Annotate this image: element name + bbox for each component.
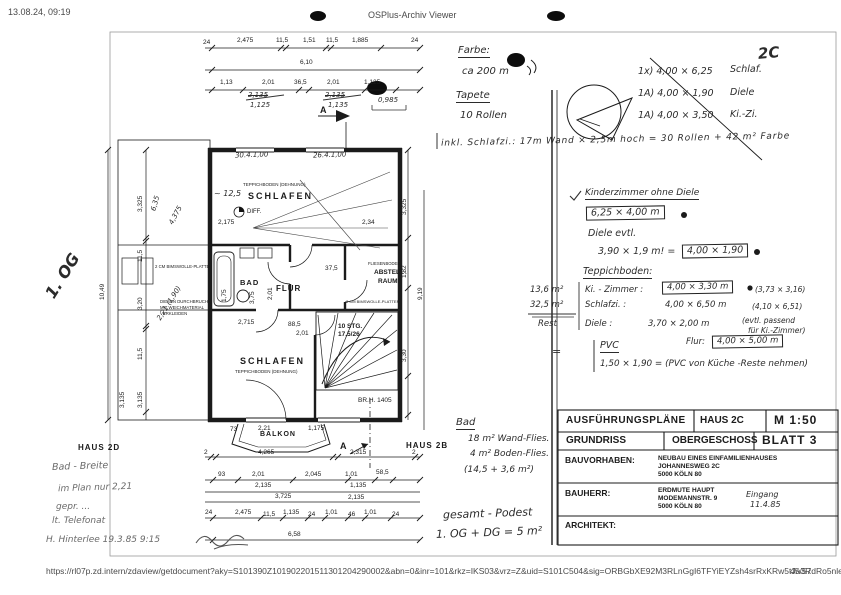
hand-note-small: (3,73 × 3,16) — [755, 286, 805, 294]
dim-label: 2,34 — [362, 220, 375, 227]
dim-label: 2,01 — [296, 331, 309, 338]
dim-hand: 1,135 — [328, 102, 348, 109]
titleblock-house: HAUS 2C — [700, 416, 744, 426]
stair-label2: 17,5/26 — [338, 332, 360, 339]
dim-label: 2,21 — [258, 426, 271, 433]
room-label-flur: FLUR — [276, 285, 301, 293]
hand-boxed-dimension: 4,00 × 1,90 — [682, 243, 749, 258]
hand-bad-header: Bad — [456, 418, 475, 430]
titleblock-client-line: 5000 KÖLN 80 — [658, 504, 702, 511]
dim-label: 24 — [308, 512, 315, 519]
dim-hand: 1,125 — [250, 102, 270, 109]
dim-label: 24 — [392, 512, 399, 519]
page-indicator: 45/57 — [790, 567, 811, 576]
hand-list-room: Ki.-Zi. — [730, 110, 757, 120]
hand-receipt-date: 11.4.85 — [750, 501, 781, 509]
hand-note-small: für Ki.-Zimmer) — [748, 327, 805, 335]
hand-window-note: 26.4.1,00 — [313, 151, 347, 159]
hand-area-value: 13,6 m² — [530, 286, 563, 295]
room-label-schlafen-top: SCHLAFEN — [248, 192, 313, 201]
dim-hand-corrected: 2,135 — [325, 92, 345, 99]
dim-label: 1,135 — [350, 483, 366, 490]
dim-hand: 0,985 — [378, 97, 398, 104]
print-timestamp: 13.08.24, 09:19 — [8, 8, 71, 17]
titleblock-label-bauherr: BAUHERR: — [565, 489, 610, 498]
dim-label: 1,82 — [402, 265, 409, 278]
dim-label: 24 — [203, 40, 210, 47]
dim-label: 24 — [411, 38, 418, 45]
titleblock-label-architekt: ARCHITEKT: — [565, 521, 616, 530]
dim-label: 2,045 — [305, 472, 321, 479]
hand-podest-calc: 1. OG + DG = 5 m² — [436, 525, 543, 540]
hole-punch-dot — [310, 11, 565, 95]
north-arrow-stamp — [567, 85, 632, 140]
insulation-note-left: 2 CM BIMSWOLLE-PLATTE — [155, 265, 209, 269]
hand-boxed-dimension: 4,00 × 5,00 m — [712, 334, 784, 348]
hand-bad-line: (14,5 + 3,6 m²) — [464, 466, 534, 475]
dim-label: 1,885 — [352, 38, 368, 45]
hand-flur-label: Flur: — [686, 338, 705, 347]
hand-area-value: 32,5 m² — [530, 301, 563, 310]
dim-label: 9,19 — [418, 287, 425, 300]
hand-note-tapete-qty: 10 Rollen — [460, 111, 507, 121]
hand-note-small: (4,10 × 6,51) — [752, 303, 802, 311]
titleblock-storey: OBERGESCHOSS — [672, 436, 758, 446]
titleblock-project-line: 5000 KÖLN 80 — [658, 472, 702, 479]
section-marker-a-bottom: A — [340, 442, 347, 451]
hand-bad-line: 18 m² Wand-Flies. — [468, 435, 549, 444]
hand-note-kizi: Kinderzimmer ohne Diele — [585, 189, 699, 200]
dim-label: 3,325 — [138, 196, 145, 212]
viewer-title: OSPlus-Archiv Viewer — [368, 11, 456, 20]
hand-receipt-stamp: Eingang — [746, 491, 778, 499]
dim-label: 11,5 — [326, 38, 338, 45]
hand-list-item: 1A) 4,00 × 1,90 — [638, 89, 714, 99]
dim-label: 11,5 — [263, 512, 275, 519]
titleblock-drawing-name: GRUNDRISS — [566, 436, 626, 446]
hand-equals: = — [552, 346, 561, 357]
hand-room-name: Ki. - Zimmer : — [585, 286, 643, 295]
room-label-abstell2: RAUM — [378, 279, 398, 286]
hand-teppich-header: Teppichboden: — [583, 267, 652, 279]
diff-label: DIFF. — [247, 209, 261, 215]
room-note: FLIESENBODEN — [368, 262, 400, 266]
hand-pvc-header: PVC — [600, 341, 619, 353]
section-marker-a-top: A — [320, 106, 327, 115]
hand-margin-note: Bad - Breite — [52, 461, 109, 472]
hand-dimension: 4,00 × 6,50 m — [665, 301, 726, 310]
dim-label: 11,5 — [276, 38, 288, 45]
hand-boxed-dimension: 4,00 × 3,30 m — [662, 280, 734, 294]
house-label-left: HAUS 2D — [78, 444, 120, 452]
dim-label: 2,01 — [327, 80, 340, 87]
hand-dimension: 3,70 × 2,00 m — [648, 320, 709, 329]
titleblock-client-line: MODEMANNSTR. 9 — [658, 496, 717, 503]
dim-label: 2,475 — [237, 38, 253, 45]
parapet-height-label: BR.H. 1405 — [358, 398, 392, 405]
hand-note-diele: Diele evtl. — [588, 229, 636, 239]
dim-label: 73 — [230, 427, 237, 434]
document-url: https://rl07p.zd.intern/zdaview/getdocum… — [46, 567, 841, 576]
hand-list-room: Diele — [730, 88, 754, 98]
dim-label: 37,5 — [325, 266, 338, 273]
titleblock-project-line: JOHANNESWEG 2C — [658, 464, 720, 471]
hand-list-item: 1A) 4,00 × 3,50 — [638, 111, 714, 121]
dim-label: 36,5 — [294, 80, 307, 87]
dim-label: 1,135 — [283, 510, 299, 517]
hand-podest-note: gesamt - Podest — [443, 506, 533, 520]
hand-room-name: Schlafzi. : — [585, 301, 626, 310]
hand-list-room: Schlaf. — [730, 65, 762, 75]
room-label-bad: BAD — [240, 279, 259, 287]
dim-label: 24 — [205, 510, 212, 517]
dim-label: 1,125 — [364, 80, 380, 87]
dim-label: 1,01 — [345, 472, 358, 479]
dim-label: 58,5 — [376, 470, 389, 477]
dim-label: 4,265 — [258, 450, 274, 457]
dim-label: 46 — [348, 512, 355, 519]
dim-label: 1,51 — [303, 38, 316, 45]
dim-label: 1,01 — [325, 510, 338, 517]
hand-note-tapete: Tapete — [456, 91, 490, 103]
dim-label: 3,135 — [138, 392, 145, 408]
hand-note-farbe-qty: ca 200 m — [462, 67, 509, 77]
dim-label: 93 — [218, 472, 225, 479]
dim-label: 2,01 — [262, 80, 275, 87]
stair-label: 10 STG. — [338, 324, 362, 331]
room-note: TEPPICHBODEN (DEHNUNG) — [243, 183, 306, 188]
room-note: TEPPICHBODEN (DEHNUNG) — [235, 370, 298, 375]
dim-label: 88,5 — [288, 322, 301, 329]
hand-area-note: ~ 12,5 — [214, 190, 241, 198]
titleblock-sheet: BLATT 3 — [762, 434, 817, 446]
dim-label: 1,75 — [222, 289, 229, 302]
archive-viewer-print-page: 13.08.24, 09:19 OSPlus-Archiv Viewer htt… — [0, 0, 841, 595]
dim-label: 1,13 — [220, 80, 233, 87]
titleblock-scale: M 1:50 — [774, 414, 817, 426]
room-label-schlafen-bottom: SCHLAFEN — [240, 357, 305, 366]
dim-label: 2,475 — [235, 510, 251, 517]
titleblock-label-bauvorhaben: BAUVORHABEN: — [565, 456, 635, 465]
dim-label: 3,725 — [275, 494, 291, 501]
hand-area-value: Rest — [538, 320, 557, 329]
hand-margin-note: H. Hinterlee 19.3.85 9:15 — [46, 536, 160, 545]
hand-pvc-calculation: 1,50 × 1,90 = (PVC von Küche -Reste nehm… — [600, 360, 808, 369]
hand-bad-line: 4 m² Boden-Flies. — [470, 450, 549, 459]
dim-label: 1,01 — [364, 510, 377, 517]
dim-label: 2,01 — [268, 287, 275, 300]
hand-note-farbe: Farbe: — [458, 46, 490, 58]
titleblock-project-line: NEUBAU EINES EINFAMILIENHAUSES — [658, 456, 777, 463]
dim-label: 3,75 — [250, 291, 257, 304]
dim-label: 2,135 — [348, 495, 364, 502]
titleblock-client-line: ERDMUTE HAUPT — [658, 488, 714, 495]
hand-list-item: 1x) 4,00 × 6,25 — [638, 67, 713, 77]
dim-label: 2,135 — [255, 483, 271, 490]
hand-boxed-dimension: 6,25 × 4,00 m — [586, 205, 665, 220]
dim-label: 2,01 — [252, 472, 265, 479]
dim-label: 3,20 — [138, 297, 145, 310]
dim-label: 2,175 — [218, 220, 234, 227]
dim-hand-corrected: 2,135 — [248, 92, 268, 99]
hand-note-small: (evtl. passend — [742, 317, 795, 325]
dim-label: 6,58 — [288, 532, 301, 539]
titleblock-plan-type: AUSFÜHRUNGSPLÄNE — [566, 416, 686, 426]
dim-label: 2,715 — [238, 320, 254, 327]
dim-label: 2 — [204, 450, 208, 457]
hand-margin-note: gepr. ... — [56, 503, 90, 512]
dim-label: 10,49 — [100, 284, 107, 300]
dim-label: 1,175 — [308, 426, 324, 433]
insulation-note-right: 2 CM BIMSWOLLE-PLATTEN — [346, 300, 400, 304]
dim-label: 3,135 — [120, 392, 127, 408]
hand-window-note: 30.4.1,00 — [235, 151, 269, 159]
dim-label: 2 — [412, 450, 416, 457]
dim-label: 6,10 — [300, 60, 313, 67]
hand-margin-note: lt. Telefonat — [52, 517, 105, 526]
dim-label: 11,5 — [138, 250, 145, 262]
dim-label: 3,325 — [402, 199, 409, 215]
dim-label: 2,315 — [350, 450, 366, 457]
hand-room-name: Diele : — [585, 320, 612, 329]
dim-label: 3,30 — [402, 349, 409, 362]
hand-calc-diele: 3,90 × 1,9 m! = — [598, 247, 675, 257]
dim-label: 11,5 — [138, 348, 145, 360]
hand-corner-mark: 2C — [757, 45, 780, 62]
